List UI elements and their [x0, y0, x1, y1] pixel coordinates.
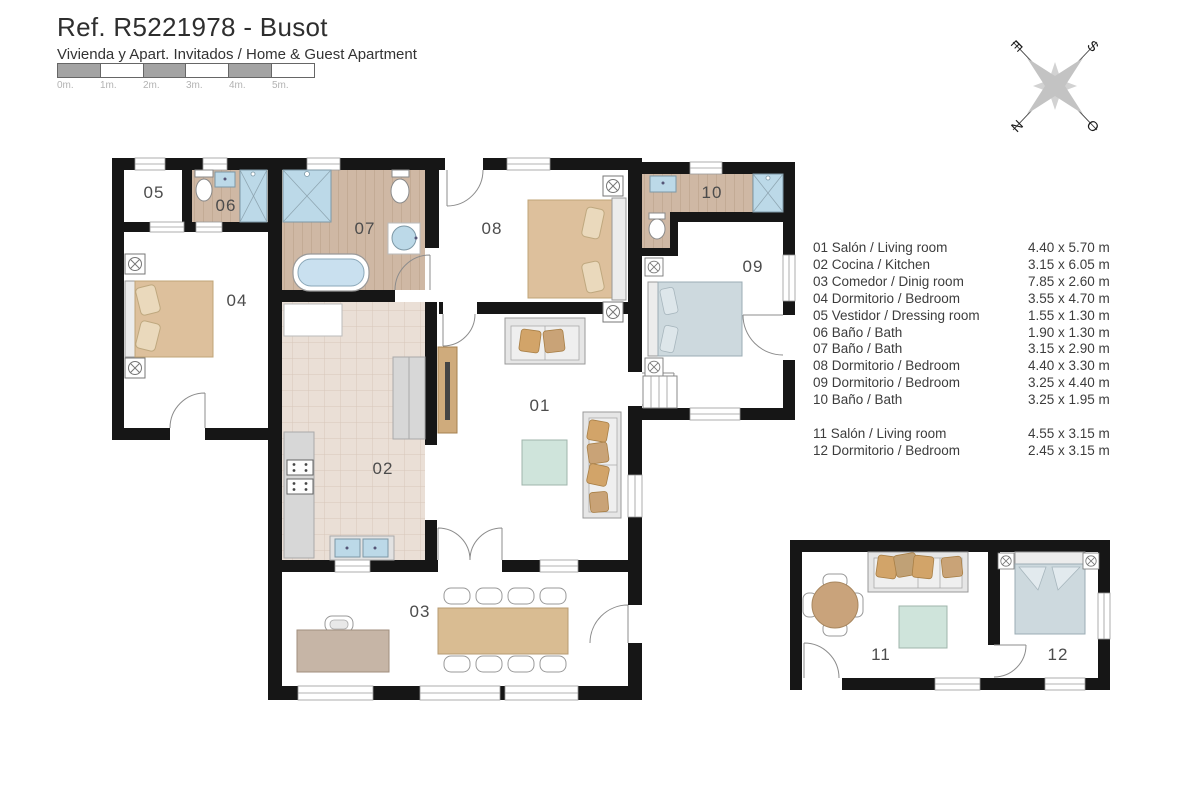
nightstand-icon — [125, 254, 145, 274]
room-label-06: 06 — [216, 196, 237, 216]
room-label-04: 04 — [227, 291, 248, 311]
round-table — [812, 582, 858, 628]
bed-09 — [648, 282, 742, 356]
bed-08 — [528, 198, 626, 300]
wardrobe-09-icon — [643, 376, 677, 408]
nightstand-icon — [603, 176, 623, 196]
floor-plan: 01 02 03 04 05 06 07 08 09 10 11 12 — [100, 150, 1120, 706]
shower-10-icon — [753, 174, 783, 212]
page-subtitle: Vivienda y Apart. Invitados / Home & Gue… — [57, 46, 417, 63]
tv-unit-icon — [438, 347, 457, 433]
coffee-table-11 — [899, 606, 947, 648]
compass-rose-icon: E S N O — [1003, 24, 1115, 142]
room-label-09: 09 — [743, 257, 764, 277]
sofa-11 — [868, 552, 968, 592]
room-label-11: 11 — [871, 645, 891, 665]
scale-bar-segments — [57, 63, 315, 78]
kitchen-counter — [284, 432, 314, 558]
nightstand-icon — [645, 358, 663, 376]
room-label-12: 12 — [1048, 645, 1069, 665]
sofa-01-right — [583, 412, 621, 518]
nightstand-icon — [603, 302, 623, 322]
floorplan-page: Ref. R5221978 - Busot Vivienda y Apart. … — [0, 0, 1200, 800]
shower-06-icon — [240, 170, 267, 222]
scale-bar: 0m. 1m. 2m. 3m. 4m. 5m. — [57, 63, 315, 91]
dining-set-11 — [803, 574, 863, 636]
room-label-07: 07 — [355, 219, 376, 239]
kitchen-counter — [284, 304, 342, 336]
room-label-10: 10 — [702, 183, 723, 203]
washbasin-07-icon — [388, 223, 420, 254]
room-label-05: 05 — [144, 183, 165, 203]
desk-03 — [297, 616, 389, 672]
title-block: Ref. R5221978 - Busot Vivienda y Apart. … — [57, 12, 417, 63]
room-label-01: 01 — [530, 396, 551, 416]
room-label-08: 08 — [482, 219, 503, 239]
toilet-10-icon — [649, 213, 665, 239]
coffee-table-01 — [522, 440, 567, 485]
page-title: Ref. R5221978 - Busot — [57, 12, 417, 43]
sink-10-icon — [650, 176, 676, 192]
dining-set-03 — [438, 588, 568, 672]
bed-04 — [125, 281, 213, 357]
toilet-06-icon — [195, 170, 213, 201]
sofa-01-top — [505, 318, 585, 364]
shower-07-icon — [283, 170, 331, 222]
toilet-07-icon — [391, 170, 409, 203]
bathtub-07-icon — [293, 254, 369, 291]
room-label-03: 03 — [410, 602, 431, 622]
sink-06-icon — [215, 172, 235, 187]
nightstand-icon — [125, 358, 145, 378]
floor-plan-drawing — [100, 150, 1120, 706]
nightstand-icon — [1083, 553, 1099, 569]
nightstand-icon — [998, 553, 1014, 569]
nightstand-icon — [645, 258, 663, 276]
bed-12 — [1015, 552, 1085, 634]
dining-table — [438, 608, 568, 654]
kitchen-sink-icon — [330, 536, 394, 560]
room-label-02: 02 — [373, 459, 394, 479]
scale-bar-labels: 0m. 1m. 2m. 3m. 4m. 5m. — [57, 80, 315, 91]
compass-east: E — [1008, 37, 1026, 55]
